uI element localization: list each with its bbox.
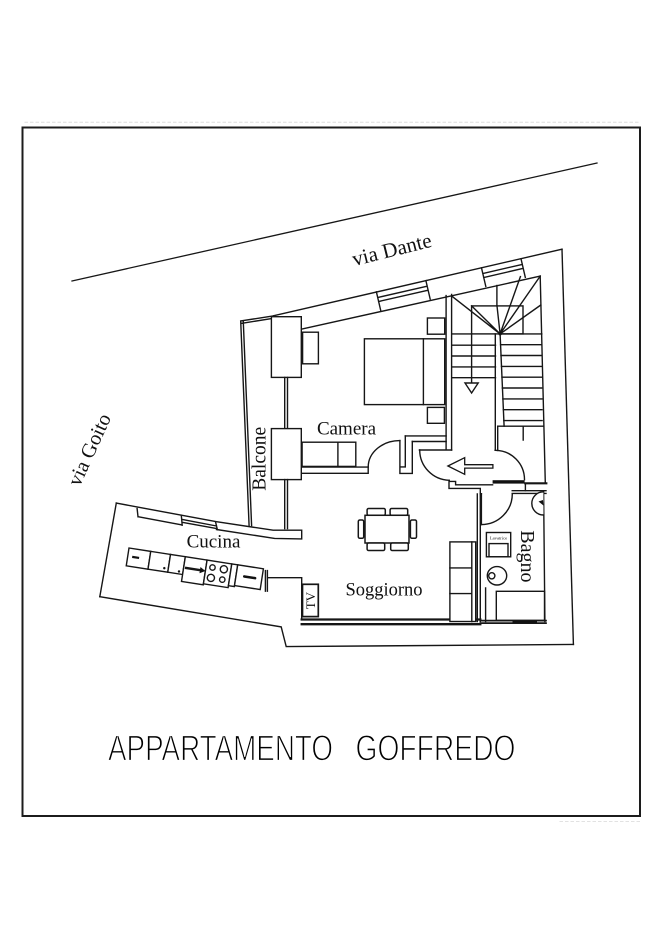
svg-text:via Dante: via Dante [350,228,434,271]
svg-text:Cucina: Cucina [187,532,241,553]
svg-text:Bagno: Bagno [516,530,538,582]
svg-text:APPARTAMENTO: APPARTAMENTO [108,728,333,769]
svg-text:Camera: Camera [317,419,377,440]
svg-text:Lavatrice: Lavatrice [490,536,507,541]
svg-text:GOFFREDO: GOFFREDO [356,728,516,769]
svg-text:via Goito: via Goito [64,410,116,489]
svg-text:Balcone: Balcone [249,427,270,491]
svg-text:TV: TV [303,591,318,609]
svg-text:Soggiorno: Soggiorno [345,581,422,601]
